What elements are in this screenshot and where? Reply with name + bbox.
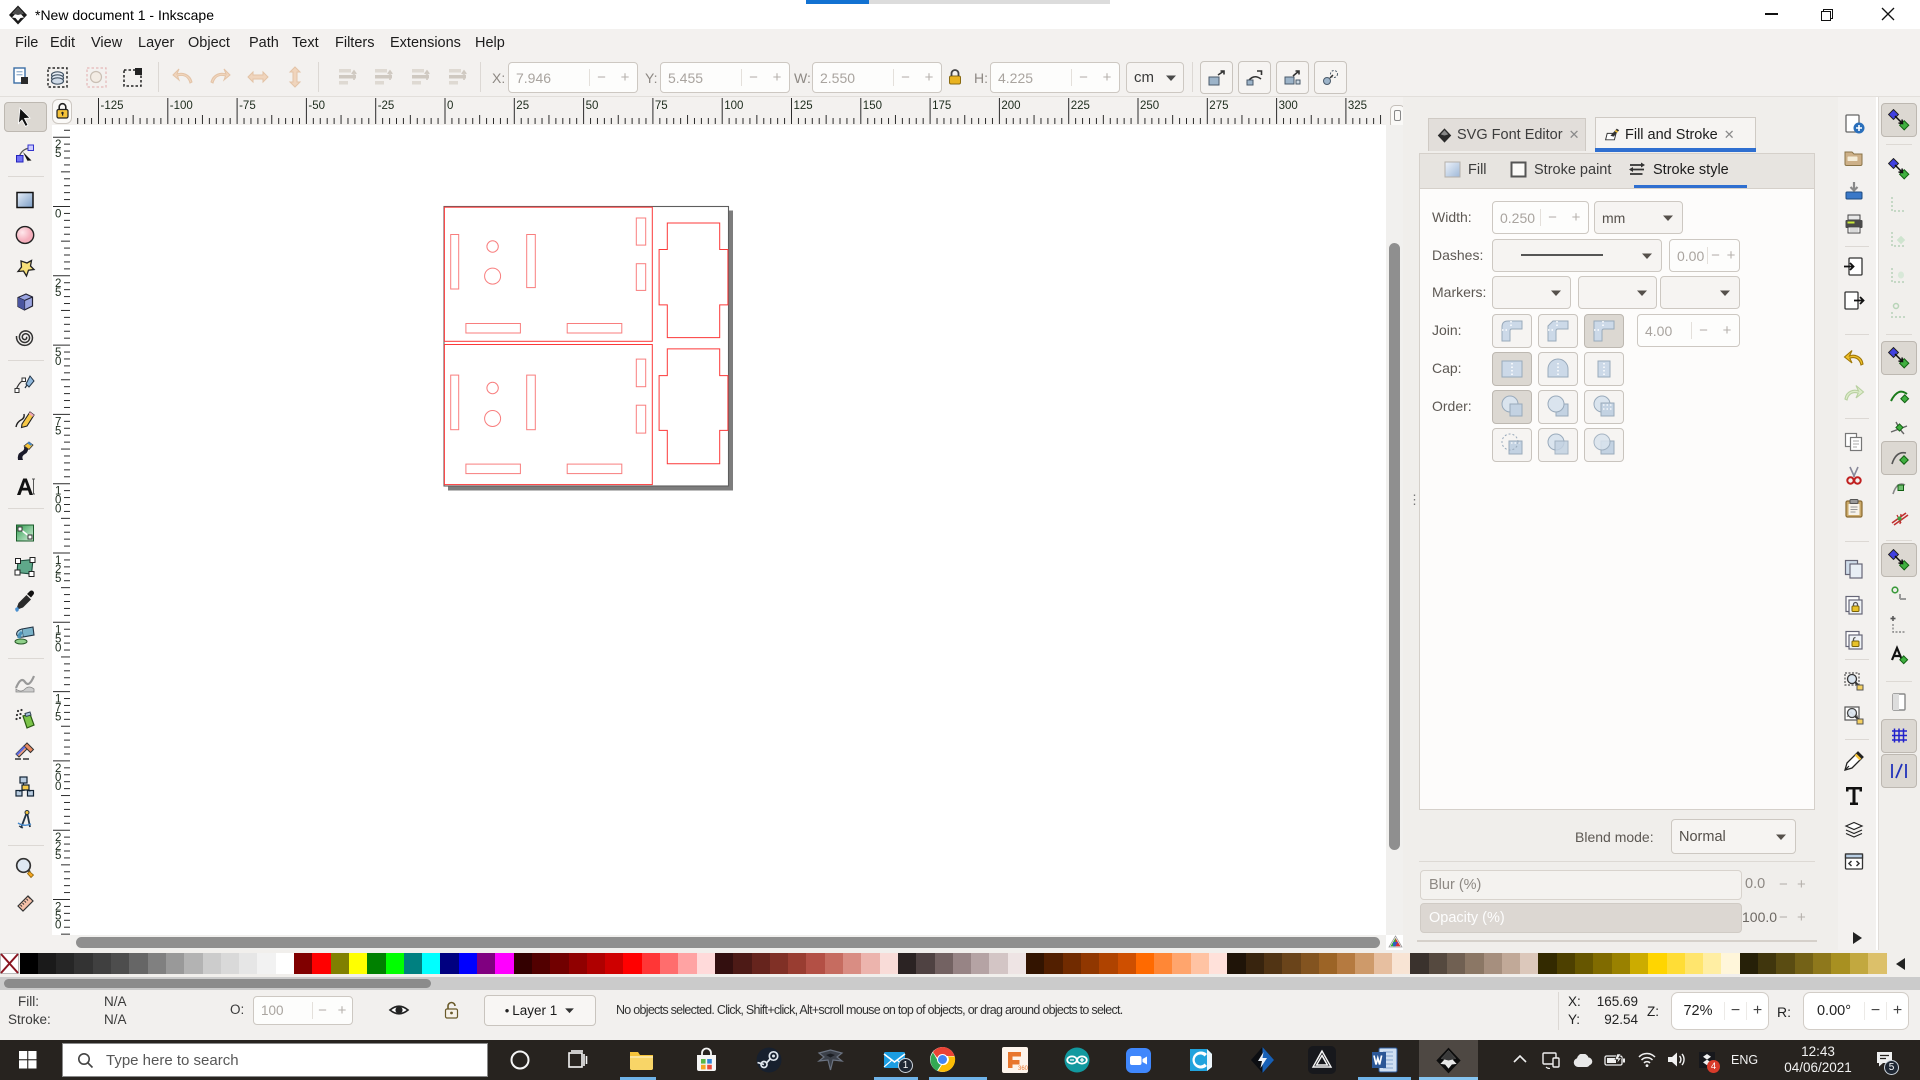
svg-text:360: 360 xyxy=(1018,1066,1028,1072)
